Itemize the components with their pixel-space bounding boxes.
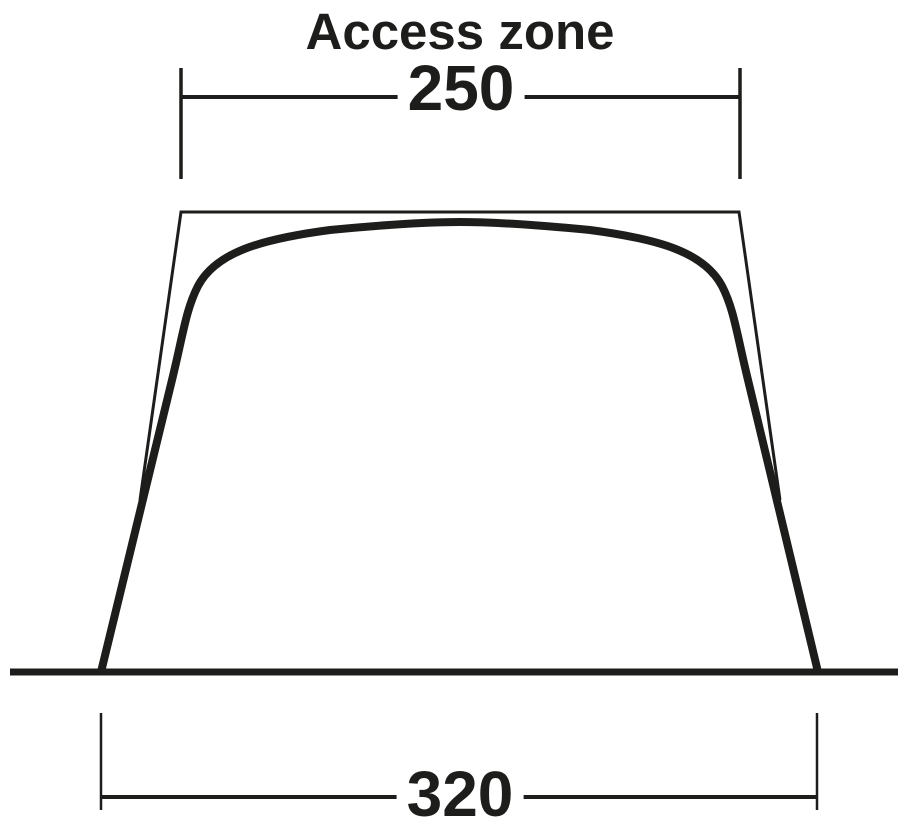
tent-pole-frame [101,222,818,672]
bottom-dimension-label: 320 [397,762,524,826]
tent-dimension-diagram: Access zone 250 320 [0,0,908,826]
diagram-title: Access zone [306,6,615,57]
top-dimension-label: 250 [398,56,525,120]
